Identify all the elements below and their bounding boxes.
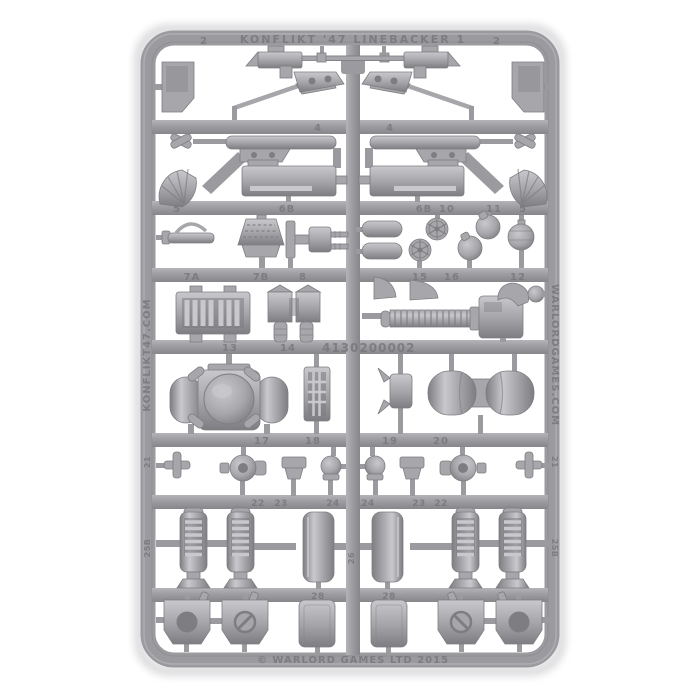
part-dome-turret — [170, 364, 288, 430]
gate — [356, 249, 362, 254]
detail — [286, 221, 295, 258]
row3-right-parts — [356, 210, 534, 268]
label-n15: 15 — [412, 272, 428, 283]
hole — [251, 152, 257, 158]
gate — [478, 415, 483, 434]
part-flat-panel — [299, 600, 335, 647]
part-support-beam — [226, 136, 336, 149]
gate — [449, 354, 454, 372]
label-n6b: 6B — [416, 204, 433, 215]
row4-right-parts — [362, 277, 548, 342]
detail — [238, 219, 284, 245]
muzzle — [381, 311, 390, 327]
part-flanged-joint — [220, 455, 266, 481]
gate — [156, 463, 164, 468]
label-n12: 12 — [510, 272, 526, 283]
detail — [508, 224, 534, 250]
gate — [259, 257, 265, 268]
label-n2: 2 — [493, 36, 501, 47]
part-grille-block — [176, 286, 250, 342]
gate — [314, 354, 319, 368]
part-canister-box — [362, 243, 402, 259]
label-n25b: 25B — [550, 539, 559, 558]
gate — [193, 139, 226, 144]
hole — [269, 152, 275, 158]
part-quarter-fan — [410, 280, 438, 300]
slats — [187, 300, 237, 326]
label-n25b: 25B — [143, 539, 152, 558]
label-n2: 2 — [200, 36, 208, 47]
dome — [204, 374, 254, 424]
detail — [268, 285, 292, 292]
label-n8: 8 — [299, 272, 307, 283]
detail — [296, 292, 320, 322]
gate — [328, 480, 333, 495]
cylinder — [486, 371, 534, 415]
gate — [291, 479, 296, 496]
gate — [188, 424, 194, 434]
detail — [173, 452, 181, 478]
gate — [331, 447, 336, 456]
molded-text-right-rail: WARLORDGAMES.COM — [549, 284, 560, 426]
barrel-rod — [234, 86, 298, 108]
part-twin-cylinder — [428, 354, 534, 434]
part-vent-cylinder — [177, 508, 210, 588]
gate — [467, 260, 472, 268]
part-twin-pack — [268, 285, 320, 342]
detail — [296, 285, 320, 292]
part-small-bracket — [282, 457, 306, 479]
detail — [458, 236, 482, 260]
gate — [264, 424, 270, 434]
gate — [500, 338, 506, 342]
tab — [224, 334, 236, 342]
gate — [512, 354, 517, 372]
gate — [184, 644, 189, 652]
label-n5: 5 — [173, 204, 181, 215]
label-n18: 18 — [305, 436, 321, 447]
label-n19: 19 — [382, 436, 398, 447]
detail — [476, 215, 500, 239]
detail — [282, 457, 306, 468]
label-n4: 4 — [386, 123, 394, 134]
label-n23: 23 — [412, 499, 426, 509]
prong — [300, 322, 313, 342]
gate — [210, 618, 222, 624]
row5-left-parts — [170, 354, 330, 434]
scope — [268, 46, 284, 52]
hole — [309, 78, 316, 85]
label-n22: 22 — [251, 499, 265, 509]
gate — [542, 291, 548, 297]
part-slat-vent-plate — [304, 354, 330, 434]
molded-text-top: KONFLIKT '47 LINEBACKER 1 — [240, 33, 466, 46]
detail — [321, 456, 341, 476]
part-grenade-sphere — [458, 231, 482, 260]
hole — [325, 76, 332, 83]
gate — [232, 106, 237, 120]
part-gun-body — [242, 160, 347, 196]
gate — [240, 481, 245, 495]
label-n14: 14 — [280, 343, 296, 354]
collar — [323, 474, 339, 480]
row4-left-parts — [176, 285, 320, 342]
belt-loop — [176, 224, 206, 233]
gate — [254, 543, 296, 550]
gate — [398, 408, 403, 434]
horn — [378, 368, 390, 382]
detail — [484, 302, 502, 312]
tab — [190, 334, 202, 342]
part-round-joint — [321, 456, 341, 480]
detail — [390, 374, 412, 408]
gate — [398, 354, 403, 375]
part-vent-cylinder — [224, 508, 257, 588]
row2-right-parts-mirrored — [359, 133, 547, 207]
label-n28: 28 — [311, 592, 325, 602]
gate — [288, 258, 293, 268]
gate — [286, 196, 291, 202]
gate — [417, 261, 422, 268]
end-cap — [170, 377, 202, 423]
detail — [289, 298, 299, 316]
label-n16: 16 — [444, 272, 460, 283]
row6-left-parts — [156, 447, 346, 496]
label-n4: 4 — [314, 123, 322, 134]
gate — [156, 617, 164, 623]
detail — [242, 166, 336, 196]
bottom-right-parts-mirrored — [371, 591, 550, 653]
recess — [308, 372, 326, 416]
row3-left-parts — [156, 215, 348, 268]
row5-right-parts — [378, 354, 534, 434]
label-n21: 21 — [143, 456, 152, 468]
label-n13: 13 — [222, 343, 238, 354]
label-n21: 21 — [550, 456, 559, 468]
label-n24: 24 — [361, 499, 375, 509]
molded-text-left-rail: KONFLIKT47.COM — [142, 298, 153, 411]
dome-highlight — [212, 384, 232, 398]
detail — [268, 292, 292, 322]
detail — [309, 227, 331, 252]
gate — [334, 543, 346, 550]
gate — [316, 582, 321, 589]
row7-right-parts-mirrored — [360, 508, 550, 589]
gate — [242, 644, 247, 652]
label-n23: 23 — [274, 499, 288, 509]
label-n26: 26 — [347, 552, 356, 564]
part-cross-joint — [170, 133, 193, 150]
collar — [470, 307, 479, 330]
label-n22: 22 — [434, 499, 448, 509]
receiver — [258, 52, 302, 68]
part-cross-bit — [164, 452, 190, 478]
cylinder — [428, 371, 476, 415]
sprue-photo: KONFLIKT '47 LINEBACKER 1 2 2 4 4 5 6B 6… — [0, 0, 700, 700]
detail — [168, 233, 214, 243]
gate — [315, 647, 320, 653]
gate — [156, 540, 180, 547]
gate — [154, 84, 162, 90]
row6-right-parts-mirrored — [360, 447, 550, 496]
magazine — [280, 66, 292, 78]
mold-code: 4130200002 — [322, 341, 416, 355]
molded-text-bottom: © WARLORD GAMES LTD 2015 — [257, 655, 449, 666]
detail — [166, 66, 188, 92]
part-faceted-sphere — [508, 215, 534, 268]
gate — [226, 354, 232, 365]
row2-left-parts — [159, 133, 347, 207]
label-n20: 20 — [433, 436, 449, 447]
cap — [177, 612, 197, 632]
label-n10: 10 — [439, 204, 455, 215]
label-n6b: 6B — [279, 204, 296, 215]
hub — [435, 227, 440, 232]
prong — [274, 322, 287, 342]
row7-left-parts — [156, 508, 346, 589]
gate — [314, 421, 319, 434]
muzzle — [336, 176, 347, 184]
hole — [238, 463, 248, 473]
label-n11: 11 — [486, 204, 502, 215]
gate — [333, 148, 341, 168]
gate — [356, 227, 362, 232]
part-curved-panel — [303, 512, 334, 582]
detail — [220, 463, 229, 473]
detail — [242, 245, 280, 257]
part-prong-connector — [286, 221, 348, 268]
gate — [341, 464, 346, 469]
part-canister-box — [362, 221, 402, 237]
gate — [519, 250, 524, 268]
gate — [207, 540, 227, 547]
bottom-left-parts — [156, 591, 335, 653]
part-textured-wedge — [238, 215, 284, 268]
label-n24: 24 — [326, 499, 340, 509]
part-spoked-wheel — [426, 218, 448, 240]
gate — [362, 313, 381, 319]
label-n28: 28 — [382, 592, 396, 602]
detail — [285, 468, 303, 479]
horn — [378, 400, 390, 414]
detail — [295, 235, 309, 244]
hub — [418, 248, 423, 253]
ball-joint — [528, 286, 544, 302]
part-ammo-belt — [162, 224, 214, 244]
detail — [250, 186, 312, 191]
part-horned-bracket — [378, 354, 412, 434]
label-n17: 17 — [254, 436, 270, 447]
label-n7b: 7B — [253, 272, 270, 283]
label-n5: 5 — [519, 204, 527, 215]
label-n7a: 7A — [184, 272, 201, 283]
stock — [246, 52, 258, 66]
part-rifle-angled — [232, 72, 344, 120]
end-cap — [256, 377, 288, 423]
part-spoked-wheel — [409, 239, 431, 261]
